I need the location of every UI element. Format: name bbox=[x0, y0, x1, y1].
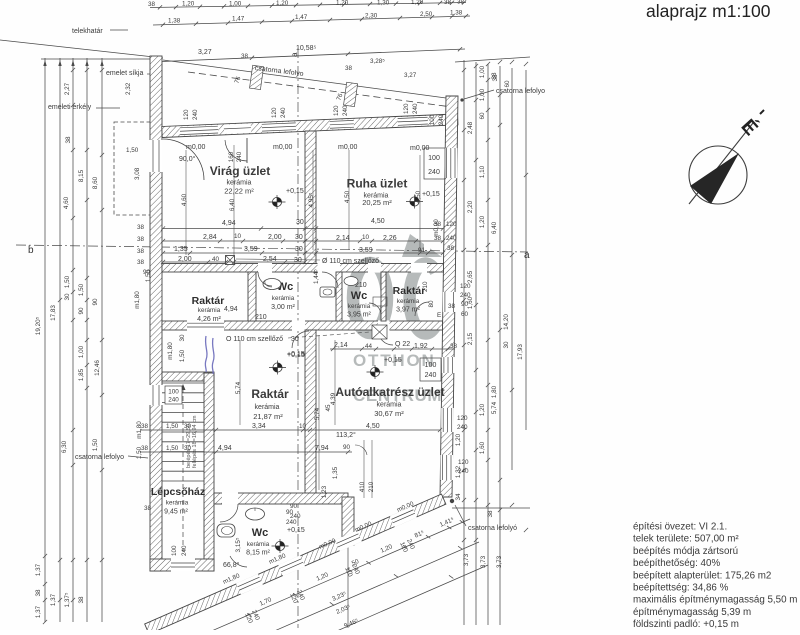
svg-text:6,40: 6,40 bbox=[491, 221, 498, 234]
svg-text:3,27: 3,27 bbox=[198, 49, 212, 56]
svg-text:m1,80: m1,80 bbox=[134, 291, 141, 309]
svg-text:1,00: 1,00 bbox=[479, 65, 486, 78]
svg-text:3,28⁵: 3,28⁵ bbox=[370, 58, 385, 65]
svg-text:1,37: 1,37 bbox=[50, 593, 57, 606]
svg-text:30: 30 bbox=[179, 334, 186, 342]
svg-text:m0,00: m0,00 bbox=[433, 219, 440, 237]
svg-text:1,50: 1,50 bbox=[136, 446, 143, 459]
svg-text:30: 30 bbox=[295, 246, 303, 253]
svg-text:5,74: 5,74 bbox=[235, 381, 242, 394]
svg-text:91: 91 bbox=[418, 247, 426, 254]
svg-text:építménymagasság 5,39 m: építménymagasság 5,39 m bbox=[633, 607, 751, 618]
svg-text:1,00: 1,00 bbox=[78, 345, 85, 358]
svg-text:telekhatár: telekhatár bbox=[72, 28, 103, 35]
svg-text:1,37⁵: 1,37⁵ bbox=[64, 592, 71, 607]
svg-text:45: 45 bbox=[325, 404, 332, 412]
svg-text:38: 38 bbox=[137, 236, 145, 243]
svg-text:410: 410 bbox=[359, 481, 366, 492]
svg-text:csatorna lefolyo: csatorna lefolyo bbox=[496, 88, 545, 95]
svg-text:240: 240 bbox=[290, 513, 301, 520]
svg-text:12,46: 12,46 bbox=[94, 360, 101, 376]
svg-text:7,94: 7,94 bbox=[315, 445, 329, 452]
svg-text:2,20: 2,20 bbox=[467, 200, 474, 213]
svg-text:44: 44 bbox=[365, 343, 373, 350]
svg-text:csatorna lefolyo: csatorna lefolyo bbox=[75, 454, 124, 461]
svg-text:10: 10 bbox=[362, 234, 370, 241]
svg-text:kerámia: kerámia bbox=[272, 295, 295, 302]
svg-text:kerámia: kerámia bbox=[255, 404, 280, 411]
svg-text:21,87 m²: 21,87 m² bbox=[253, 412, 283, 421]
svg-text:100: 100 bbox=[168, 389, 179, 396]
svg-text:4,26 m²: 4,26 m² bbox=[197, 316, 221, 323]
svg-text:1,10: 1,10 bbox=[479, 165, 486, 178]
svg-text:240: 240 bbox=[342, 105, 349, 116]
svg-text:6,30: 6,30 bbox=[61, 440, 68, 453]
svg-text:2,00: 2,00 bbox=[178, 256, 192, 263]
svg-text:2,50: 2,50 bbox=[420, 11, 433, 18]
svg-text:60: 60 bbox=[504, 80, 511, 88]
svg-text:38: 38 bbox=[137, 259, 145, 266]
svg-text:kerámia: kerámia bbox=[377, 402, 402, 409]
svg-text:5,74: 5,74 bbox=[314, 407, 321, 420]
svg-text:O 110 cm szellőző: O 110 cm szellőző bbox=[226, 336, 283, 343]
svg-text:beépítettség: 34,86 %: beépítettség: 34,86 % bbox=[633, 583, 729, 594]
svg-text:30: 30 bbox=[296, 219, 304, 226]
svg-text:240: 240 bbox=[236, 151, 243, 162]
svg-text:m0,00: m0,00 bbox=[338, 144, 358, 151]
svg-text:kerámia: kerámia bbox=[247, 541, 270, 548]
svg-text:38: 38 bbox=[144, 505, 152, 512]
svg-text:1,80: 1,80 bbox=[491, 385, 498, 398]
svg-text:240: 240 bbox=[457, 424, 468, 431]
svg-text:+0,15: +0,15 bbox=[287, 527, 305, 534]
svg-text:17,83: 17,83 bbox=[50, 305, 57, 321]
svg-text:3,59: 3,59 bbox=[244, 246, 258, 253]
svg-text:csatorna lefolyó: csatorna lefolyó bbox=[468, 525, 517, 532]
svg-text:120: 120 bbox=[457, 415, 468, 422]
svg-text:100: 100 bbox=[171, 545, 178, 556]
svg-text:emelet síkja: emelet síkja bbox=[106, 70, 143, 77]
svg-text:3,15⁵: 3,15⁵ bbox=[235, 537, 242, 552]
svg-text:113,2°: 113,2° bbox=[336, 431, 356, 439]
svg-text:emeleti erkély: emeleti erkély bbox=[48, 104, 92, 111]
svg-text:2,65: 2,65 bbox=[467, 270, 474, 283]
svg-text:210: 210 bbox=[255, 314, 267, 321]
svg-text:a: a bbox=[290, 52, 299, 57]
svg-text:240: 240 bbox=[280, 107, 287, 118]
svg-text:+0,15: +0,15 bbox=[422, 191, 440, 198]
svg-text:120: 120 bbox=[446, 221, 457, 228]
svg-text:38: 38 bbox=[65, 136, 72, 144]
svg-text:210: 210 bbox=[368, 481, 375, 492]
svg-text:4,94: 4,94 bbox=[224, 306, 238, 313]
svg-text:38: 38 bbox=[444, 0, 452, 6]
svg-text:1,30: 1,30 bbox=[377, 0, 390, 7]
svg-text:1,37: 1,37 bbox=[35, 605, 42, 618]
svg-text:Autóalkatrész üzlet: Autóalkatrész üzlet bbox=[335, 385, 444, 399]
svg-text:3,95 m²: 3,95 m² bbox=[347, 312, 371, 319]
svg-text:4,95⁵: 4,95⁵ bbox=[308, 192, 315, 207]
svg-text:38: 38 bbox=[137, 224, 145, 231]
svg-text:1,50: 1,50 bbox=[78, 283, 85, 296]
svg-text:90,0°: 90,0° bbox=[179, 155, 196, 163]
svg-text:2,14: 2,14 bbox=[334, 342, 348, 349]
svg-text:80: 80 bbox=[428, 300, 435, 308]
svg-text:1,23: 1,23 bbox=[321, 485, 328, 498]
svg-text:38: 38 bbox=[137, 248, 145, 255]
svg-text:4,39: 4,39 bbox=[330, 392, 337, 405]
svg-text:alaprajz m1:100: alaprajz m1:100 bbox=[646, 1, 771, 21]
svg-text:1,47: 1,47 bbox=[232, 16, 245, 23]
svg-text:240: 240 bbox=[428, 169, 440, 176]
svg-text:240: 240 bbox=[438, 114, 445, 125]
svg-text:19,20⁵: 19,20⁵ bbox=[35, 316, 42, 335]
svg-text:38: 38 bbox=[491, 72, 498, 80]
svg-text:3,59: 3,59 bbox=[359, 247, 373, 254]
svg-text:30: 30 bbox=[291, 336, 299, 343]
svg-text:240: 240 bbox=[458, 468, 469, 475]
svg-text:60: 60 bbox=[479, 112, 486, 120]
svg-text:30: 30 bbox=[64, 293, 71, 301]
svg-text:240: 240 bbox=[286, 519, 297, 526]
svg-text:17,93: 17,93 bbox=[517, 344, 524, 360]
svg-text:30: 30 bbox=[295, 234, 303, 241]
svg-text:1,47: 1,47 bbox=[295, 14, 308, 21]
svg-text:90: 90 bbox=[343, 444, 351, 451]
svg-text:1,35: 1,35 bbox=[332, 466, 339, 479]
svg-text:4,60: 4,60 bbox=[181, 193, 188, 206]
svg-text:210: 210 bbox=[422, 281, 429, 292]
svg-text:2,48: 2,48 bbox=[467, 121, 474, 134]
svg-text:14,20: 14,20 bbox=[503, 314, 510, 330]
svg-text:8,60: 8,60 bbox=[92, 176, 99, 189]
svg-text:240: 240 bbox=[446, 235, 457, 242]
svg-text:4,50: 4,50 bbox=[415, 190, 422, 203]
svg-text:m0,00: m0,00 bbox=[410, 145, 430, 152]
svg-text:m0,00: m0,00 bbox=[186, 144, 206, 151]
svg-text:4,94: 4,94 bbox=[222, 220, 236, 227]
svg-text:4,50: 4,50 bbox=[344, 190, 351, 203]
svg-text:40: 40 bbox=[212, 256, 220, 263]
svg-text:120: 120 bbox=[403, 103, 410, 114]
svg-text:100: 100 bbox=[425, 362, 437, 369]
svg-text:1,20: 1,20 bbox=[336, 0, 349, 7]
svg-text:1,50: 1,50 bbox=[166, 423, 179, 430]
svg-text:120: 120 bbox=[458, 459, 469, 466]
svg-text:3,08: 3,08 bbox=[134, 167, 141, 180]
svg-text:1,20: 1,20 bbox=[455, 433, 462, 446]
svg-text:1,50: 1,50 bbox=[145, 269, 152, 282]
svg-text:2,32: 2,32 bbox=[125, 82, 132, 95]
svg-text:3,00 m²: 3,00 m² bbox=[271, 304, 295, 311]
svg-text:30: 30 bbox=[184, 445, 192, 452]
svg-text:8,15 m²: 8,15 m² bbox=[246, 550, 270, 557]
svg-text:120: 120 bbox=[460, 283, 471, 290]
svg-text:m1,80: m1,80 bbox=[136, 421, 143, 439]
svg-text:66,8°: 66,8° bbox=[223, 561, 240, 569]
svg-text:120: 120 bbox=[333, 105, 340, 116]
svg-text:120: 120 bbox=[183, 109, 190, 120]
svg-text:30: 30 bbox=[184, 423, 192, 430]
svg-text:38: 38 bbox=[448, 303, 456, 310]
svg-text:1,20: 1,20 bbox=[276, 0, 289, 7]
svg-text:Wc: Wc bbox=[252, 527, 269, 539]
svg-text:beépíthetőség: 40%: beépíthetőség: 40% bbox=[633, 558, 720, 569]
svg-text:1,50: 1,50 bbox=[64, 275, 71, 288]
svg-text:kerámia: kerámia bbox=[227, 180, 252, 187]
svg-text:9,45 m²: 9,45 m² bbox=[164, 509, 188, 516]
svg-text:1,20: 1,20 bbox=[479, 215, 486, 228]
svg-text:4,60: 4,60 bbox=[63, 196, 70, 209]
svg-text:kerámia: kerámia bbox=[166, 500, 189, 507]
svg-text:90: 90 bbox=[290, 503, 298, 510]
svg-text:beépítés módja zártsorú: beépítés módja zártsorú bbox=[633, 546, 738, 557]
svg-text:+0,15: +0,15 bbox=[286, 188, 304, 195]
svg-text:2,00: 2,00 bbox=[268, 234, 282, 241]
svg-text:Lépcsőház: Lépcsőház bbox=[151, 486, 205, 498]
svg-text:30: 30 bbox=[503, 341, 510, 349]
svg-text:90: 90 bbox=[92, 298, 99, 306]
svg-text:10: 10 bbox=[299, 423, 307, 430]
svg-text:Virág üzlet: Virág üzlet bbox=[210, 164, 270, 178]
svg-text:1,50: 1,50 bbox=[126, 147, 139, 154]
svg-text:a: a bbox=[524, 250, 530, 261]
svg-text:1,37: 1,37 bbox=[35, 563, 42, 576]
svg-text:fellépés 18=16,94 cm: fellépés 18=16,94 cm bbox=[192, 415, 198, 468]
svg-text:100: 100 bbox=[429, 114, 436, 125]
svg-text:38: 38 bbox=[78, 596, 85, 604]
svg-text:1,85: 1,85 bbox=[78, 368, 85, 381]
svg-text:10,58⁵: 10,58⁵ bbox=[296, 45, 317, 52]
svg-text:2,26: 2,26 bbox=[383, 235, 397, 242]
svg-text:240: 240 bbox=[181, 545, 188, 556]
svg-text:1,20: 1,20 bbox=[479, 403, 486, 416]
svg-text:1,60: 1,60 bbox=[479, 441, 486, 454]
svg-text:22,22 m²: 22,22 m² bbox=[224, 187, 254, 196]
svg-text:+0,15: +0,15 bbox=[287, 351, 305, 358]
svg-text:1,38: 1,38 bbox=[450, 10, 463, 17]
svg-text:38: 38 bbox=[345, 65, 353, 72]
svg-text:3,73: 3,73 bbox=[496, 555, 503, 568]
svg-text:3,97 m²: 3,97 m² bbox=[396, 307, 420, 314]
svg-text:4,94: 4,94 bbox=[218, 445, 232, 452]
svg-text:5,74: 5,74 bbox=[491, 401, 498, 414]
svg-text:+0,15: +0,15 bbox=[384, 357, 402, 364]
svg-text:60: 60 bbox=[461, 311, 469, 318]
svg-text:Raktár: Raktár bbox=[192, 295, 225, 307]
svg-text:38: 38 bbox=[35, 589, 42, 597]
svg-text:240: 240 bbox=[425, 372, 437, 379]
svg-text:1,20: 1,20 bbox=[411, 0, 424, 6]
svg-text:10: 10 bbox=[234, 233, 242, 240]
svg-text:38: 38 bbox=[450, 343, 458, 350]
svg-text:1,92: 1,92 bbox=[414, 343, 428, 350]
svg-text:30,67 m²: 30,67 m² bbox=[374, 409, 404, 418]
svg-text:20,25 m²: 20,25 m² bbox=[362, 198, 392, 207]
svg-text:1,50: 1,50 bbox=[166, 445, 179, 452]
svg-text:1,00: 1,00 bbox=[479, 88, 486, 101]
svg-text:1,50: 1,50 bbox=[179, 349, 186, 362]
svg-text:1,50: 1,50 bbox=[92, 438, 99, 451]
svg-text:beépített alapterület: 175,26: beépített alapterület: 175,26 m2 bbox=[633, 570, 771, 581]
svg-text:2,15: 2,15 bbox=[467, 332, 474, 345]
svg-text:240: 240 bbox=[460, 292, 471, 299]
svg-text:2,14: 2,14 bbox=[336, 235, 350, 242]
svg-text:38: 38 bbox=[447, 245, 455, 252]
svg-text:kerámia: kerámia bbox=[397, 298, 420, 305]
svg-text:m1,80: m1,80 bbox=[167, 342, 174, 360]
svg-text:Raktár: Raktár bbox=[393, 285, 426, 297]
svg-text:Raktár: Raktár bbox=[251, 387, 289, 401]
svg-text:8,15: 8,15 bbox=[78, 169, 85, 182]
svg-text:2,84: 2,84 bbox=[203, 234, 217, 241]
svg-text:240: 240 bbox=[168, 397, 179, 404]
svg-text:3,73: 3,73 bbox=[463, 553, 470, 566]
svg-text:38: 38 bbox=[148, 1, 156, 8]
svg-text:kerámia: kerámia bbox=[348, 303, 371, 310]
svg-text:240: 240 bbox=[192, 109, 199, 120]
svg-text:b: b bbox=[28, 245, 34, 256]
svg-text:1,38: 1,38 bbox=[168, 18, 181, 25]
svg-text:90: 90 bbox=[78, 307, 85, 315]
svg-text:2,30: 2,30 bbox=[365, 13, 378, 20]
svg-text:38: 38 bbox=[241, 53, 249, 60]
svg-text:maximális építménymagasság 5,5: maximális építménymagasság 5,50 m bbox=[633, 595, 797, 606]
svg-text:38: 38 bbox=[487, 510, 494, 518]
svg-text:2,27: 2,27 bbox=[64, 82, 71, 95]
svg-text:1,44⁵: 1,44⁵ bbox=[313, 269, 320, 284]
svg-text:4,50: 4,50 bbox=[366, 423, 380, 430]
svg-text:3,27: 3,27 bbox=[404, 72, 417, 79]
svg-text:1,35: 1,35 bbox=[174, 246, 188, 253]
svg-text:Ø 110 cm szellőző: Ø 110 cm szellőző bbox=[322, 258, 379, 265]
svg-text:90: 90 bbox=[461, 301, 469, 308]
svg-text:1,00: 1,00 bbox=[229, 1, 242, 8]
svg-text:120: 120 bbox=[271, 107, 278, 118]
svg-text:1,20: 1,20 bbox=[182, 1, 195, 8]
svg-text:34: 34 bbox=[455, 493, 462, 501]
svg-text:Q 22: Q 22 bbox=[395, 341, 410, 348]
svg-text:m0,00: m0,00 bbox=[273, 144, 293, 151]
svg-text:30: 30 bbox=[294, 257, 302, 264]
svg-text:6,40: 6,40 bbox=[229, 198, 236, 211]
svg-text:E: E bbox=[437, 312, 441, 319]
svg-text:kerámia: kerámia bbox=[198, 307, 221, 314]
svg-text:Wc: Wc bbox=[351, 290, 368, 302]
svg-text:földszinti padló: +0,15 m: földszinti padló: +0,15 m bbox=[633, 619, 739, 630]
svg-text:100: 100 bbox=[428, 155, 440, 162]
svg-text:3,34: 3,34 bbox=[252, 423, 266, 430]
svg-text:38: 38 bbox=[457, 0, 465, 6]
svg-text:építési övezet: VI 2.1.: építési övezet: VI 2.1. bbox=[633, 522, 727, 533]
svg-text:240: 240 bbox=[412, 103, 419, 114]
svg-text:telek területe: 507,00 m²: telek területe: 507,00 m² bbox=[633, 534, 739, 545]
svg-text:4,50: 4,50 bbox=[371, 218, 385, 225]
svg-text:Ruha üzlet: Ruha üzlet bbox=[347, 177, 408, 191]
